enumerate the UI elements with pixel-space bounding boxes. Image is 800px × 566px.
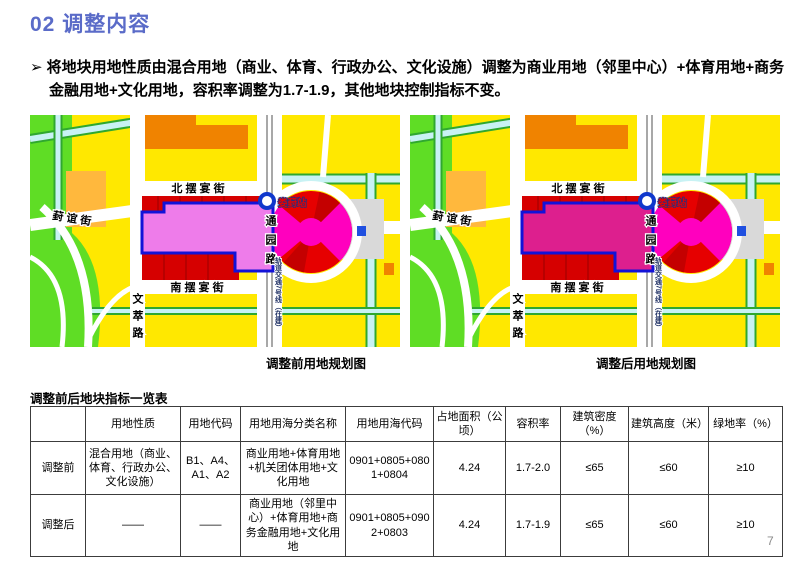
page-number: 7 (767, 534, 774, 548)
map-before-svg: 北 摆 宴 街 南 摆 宴 街 葑 谊 街 文萃路 通园路 娄葑站 轨道交通7号… (30, 115, 400, 347)
header-cell: 用地用海分类名称 (241, 407, 346, 442)
street-label-north: 北 摆 宴 街 (171, 181, 224, 195)
table-cell: 混合用地（商业、体育、行政办公、文化设施） (86, 442, 181, 495)
land-use-map-after: 北 摆 宴 街 南 摆 宴 街 葑 谊 街 文萃路 通园路 娄葑站 轨道交通7号… (410, 115, 780, 347)
table-cell: 4.24 (434, 495, 506, 557)
table-cell: 4.24 (434, 442, 506, 495)
bullet-marker: ➢ (30, 59, 43, 76)
street-label-wencui: 文萃路 (131, 292, 144, 344)
caption-before: 调整前用地规划图 (266, 353, 366, 372)
street-label-north: 北 摆 宴 街 (551, 181, 604, 195)
caption-after: 调整后用地规划图 (596, 353, 696, 372)
header-cell: 容积率 (506, 407, 561, 442)
table-cell: 0901+0805+0801+0804 (346, 442, 434, 495)
table-row-before: 调整前 混合用地（商业、体育、行政办公、文化设施） B1、A4、A1、A2 商业… (31, 442, 783, 495)
street-label-wencui: 文萃路 (511, 292, 524, 344)
land-use-map-before: 北 摆 宴 街 南 摆 宴 街 葑 谊 街 文萃路 通园路 娄葑站 轨道交通7号… (30, 115, 400, 347)
table-cell: B1、A4、A1、A2 (181, 442, 241, 495)
table-cell: ≤60 (629, 442, 709, 495)
table-cell: ≤60 (629, 495, 709, 557)
header-cell: 占地面积（公顷） (434, 407, 506, 442)
bullet-paragraph: ➢将地块用地性质由混合用地（商业、体育、行政办公、文化设施）调整为商业用地（邻里… (30, 56, 794, 103)
header-cell (31, 407, 86, 442)
table-cell: ≤65 (561, 495, 629, 557)
street-label-south: 南 摆 宴 街 (170, 280, 223, 294)
table-cell: ≤65 (561, 442, 629, 495)
header-cell: 建筑高度（米） (629, 407, 709, 442)
slide: 02 调整内容 ➢将地块用地性质由混合用地（商业、体育、行政办公、文化设施）调整… (0, 0, 800, 566)
table-cell: 0901+0805+0902+0803 (346, 495, 434, 557)
table-cell: 1.7-2.0 (506, 442, 561, 495)
metro-station-icon (260, 194, 274, 208)
map-after-svg: 北 摆 宴 街 南 摆 宴 街 葑 谊 街 文萃路 通园路 娄葑站 轨道交通7号… (410, 115, 780, 347)
table-cell: —— (86, 495, 181, 557)
header-cell: 绿地率（%） (709, 407, 783, 442)
table-cell: 商业用地+体育用地+机关团体用地+文化用地 (241, 442, 346, 495)
station-label: 娄葑站 (657, 197, 687, 209)
station-label: 娄葑站 (277, 197, 307, 209)
header-cell: 用地性质 (86, 407, 181, 442)
table-row-after: 调整后 —— —— 商业用地（邻里中心）+体育用地+商务金融用地+文化用地 09… (31, 495, 783, 557)
metro-station-icon (640, 194, 654, 208)
bullet-text: 将地块用地性质由混合用地（商业、体育、行政办公、文化设施）调整为商业用地（邻里中… (47, 59, 785, 99)
table-cell: 商业用地（邻里中心）+体育用地+商务金融用地+文化用地 (241, 495, 346, 557)
row-label: 调整后 (31, 495, 86, 557)
table-header-row: 用地性质 用地代码 用地用海分类名称 用地用海代码 占地面积（公顷） 容积率 建… (31, 407, 783, 442)
header-cell: 用地代码 (181, 407, 241, 442)
header-cell: 建筑密度（%） (561, 407, 629, 442)
table-cell: ≥10 (709, 442, 783, 495)
table-cell: —— (181, 495, 241, 557)
page-title: 02 调整内容 (30, 8, 150, 38)
indicator-table: 用地性质 用地代码 用地用海分类名称 用地用海代码 占地面积（公顷） 容积率 建… (30, 406, 783, 557)
row-label: 调整前 (31, 442, 86, 495)
table-title: 调整前后地块指标一览表 (30, 388, 168, 407)
header-cell: 用地用海代码 (346, 407, 434, 442)
street-label-south: 南 摆 宴 街 (550, 280, 603, 294)
table-cell: 1.7-1.9 (506, 495, 561, 557)
